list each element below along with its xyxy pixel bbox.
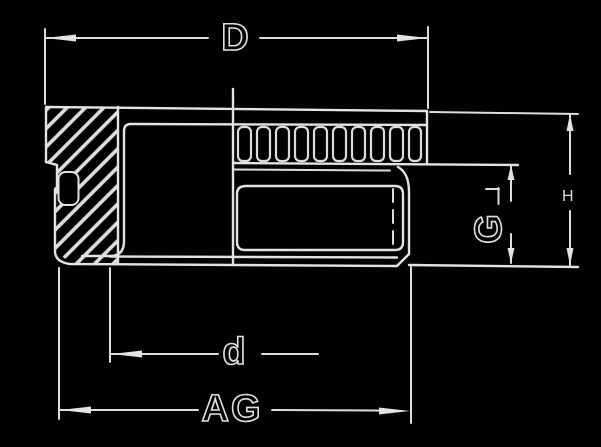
drawing-canvas: D d AG G H — [0, 0, 601, 447]
flange-notch — [59, 172, 79, 205]
dimension-label-AG: AG — [202, 388, 263, 430]
inner-bottom-line — [110, 257, 397, 258]
dimension-label-G: G — [468, 212, 510, 244]
technical-drawing: D d AG G H — [0, 0, 601, 447]
dim-line-right — [272, 410, 380, 411]
thread-secondary-line — [233, 170, 390, 171]
dimension-label-d: d — [222, 331, 247, 373]
dimension-label-H: H — [562, 188, 574, 205]
dimension-label-D: D — [221, 17, 250, 59]
